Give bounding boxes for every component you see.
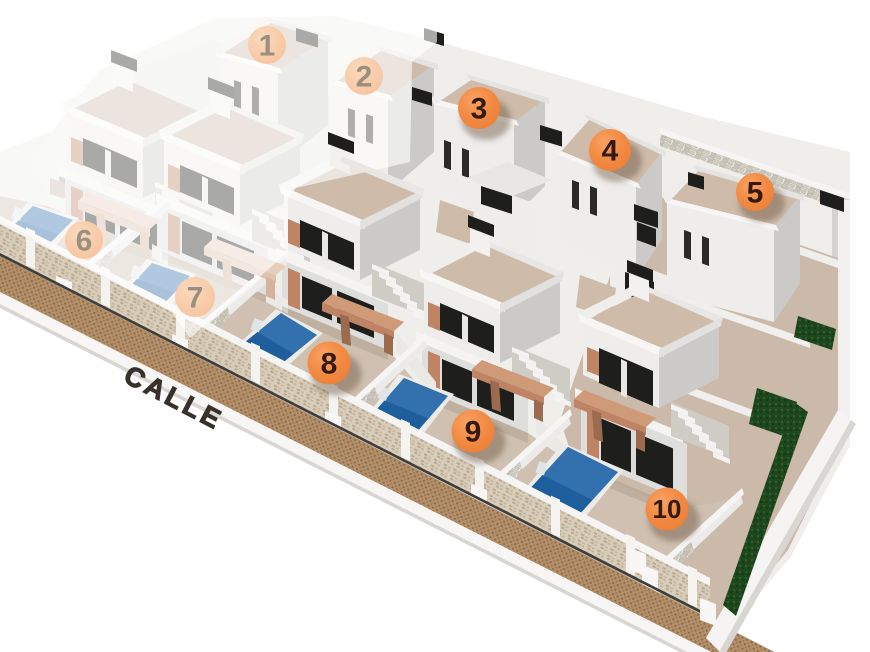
svg-text:6: 6 — [76, 225, 93, 258]
svg-text:4: 4 — [602, 135, 619, 168]
svg-text:9: 9 — [465, 416, 482, 449]
svg-text:5: 5 — [747, 177, 764, 210]
svg-text:2: 2 — [356, 61, 373, 94]
svg-text:8: 8 — [321, 348, 338, 381]
svg-text:10: 10 — [653, 494, 682, 524]
svg-text:3: 3 — [471, 93, 488, 126]
svg-text:1: 1 — [259, 30, 276, 63]
svg-text:7: 7 — [187, 282, 204, 315]
